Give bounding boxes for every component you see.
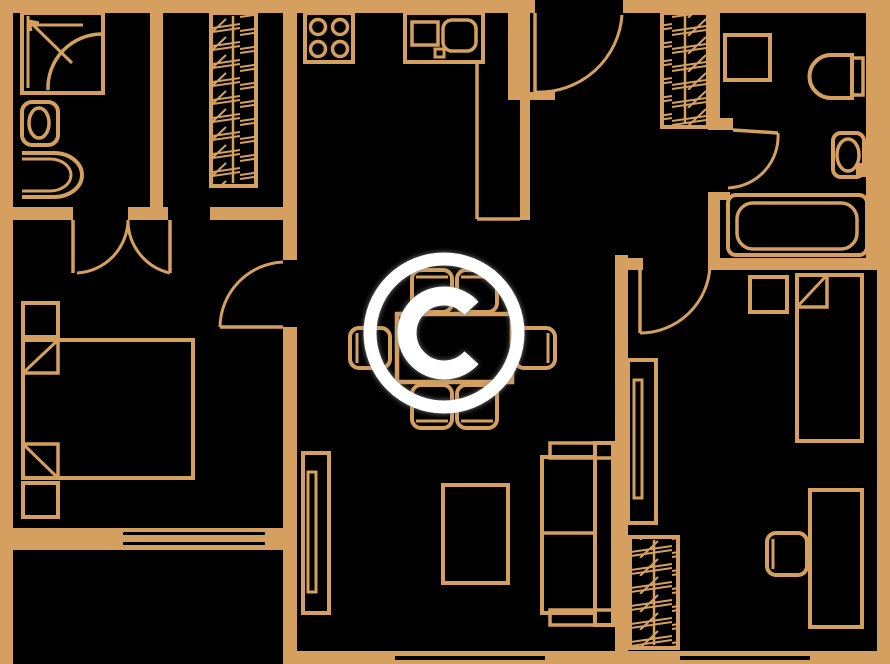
wall-entry-stub (508, 92, 555, 100)
door-bathroom-right-swing (728, 133, 778, 188)
wall-bedroom-living (283, 327, 297, 540)
window-rbedroom (680, 656, 810, 660)
toilet-left-bowl (29, 108, 49, 138)
stove-burner-2 (333, 20, 348, 35)
door-closet-nook-swing (128, 220, 170, 273)
wall-right (877, 0, 890, 664)
toilet-right (810, 55, 852, 98)
furniture-layer (22, 13, 867, 648)
watermark-letter-c (407, 296, 471, 370)
door-bedroom-left-swing (220, 262, 283, 327)
toilet-right-tank (852, 58, 863, 95)
kitchen-sink-basin (443, 20, 476, 51)
nightstand-right (750, 277, 787, 312)
sink-left-inner (22, 159, 71, 191)
wall-bedroom-bottom (0, 528, 297, 550)
kitchen-counter-square (412, 22, 438, 45)
desk (810, 490, 862, 627)
shelf-rbedroom-inner (634, 380, 642, 498)
door-bathroom-left-swing (77, 220, 128, 273)
windows-layer (123, 532, 810, 660)
pillow-right-fold (797, 275, 827, 307)
wall-rbedroom-top (710, 258, 877, 270)
kitchen-sink-tap (435, 49, 444, 57)
shower-door-arc (48, 34, 102, 90)
door-entry-swing (536, 15, 622, 92)
bed-right (797, 275, 862, 441)
window-balcony-upper (123, 532, 265, 535)
stove-burner-1 (311, 20, 326, 35)
door-bathroom-right-leaf (733, 130, 778, 133)
sink-right-bowl (837, 139, 859, 171)
door-bedroom-right-swing (640, 266, 710, 333)
bed-left (23, 340, 193, 478)
wall-kitchen-right (520, 13, 530, 220)
wall-rbedroom-jamb (615, 258, 643, 270)
floor-plan-container: C (0, 0, 890, 664)
shower-arrow-barb-2 (29, 21, 31, 31)
shower-arrow (29, 21, 72, 63)
sofa-seat (542, 457, 595, 613)
wall-balcony-right (283, 550, 297, 664)
window-living (395, 656, 545, 660)
pillow-left-1-fold (23, 340, 58, 373)
tv (308, 472, 316, 592)
wall-kitchen-left (283, 13, 297, 260)
sofa-back (595, 443, 613, 625)
bathtub-inner (737, 203, 857, 249)
wall-bath-closet-divider (150, 0, 163, 208)
pillow-left-2-fold (23, 444, 58, 478)
nightstand-left-1 (23, 303, 58, 337)
wall-hall-b (128, 207, 168, 220)
nightstand-left-2 (23, 483, 58, 517)
washing-machine (725, 35, 770, 80)
window-balcony-lower (123, 542, 265, 545)
wall-left (0, 0, 13, 664)
wall-bath-partition-stub (708, 118, 733, 130)
stove-burner-4 (333, 42, 348, 57)
wall-hall-a (13, 207, 73, 220)
stove-burner-3 (311, 42, 326, 57)
floor-plan-image (0, 0, 890, 664)
coffee-table (443, 485, 508, 583)
